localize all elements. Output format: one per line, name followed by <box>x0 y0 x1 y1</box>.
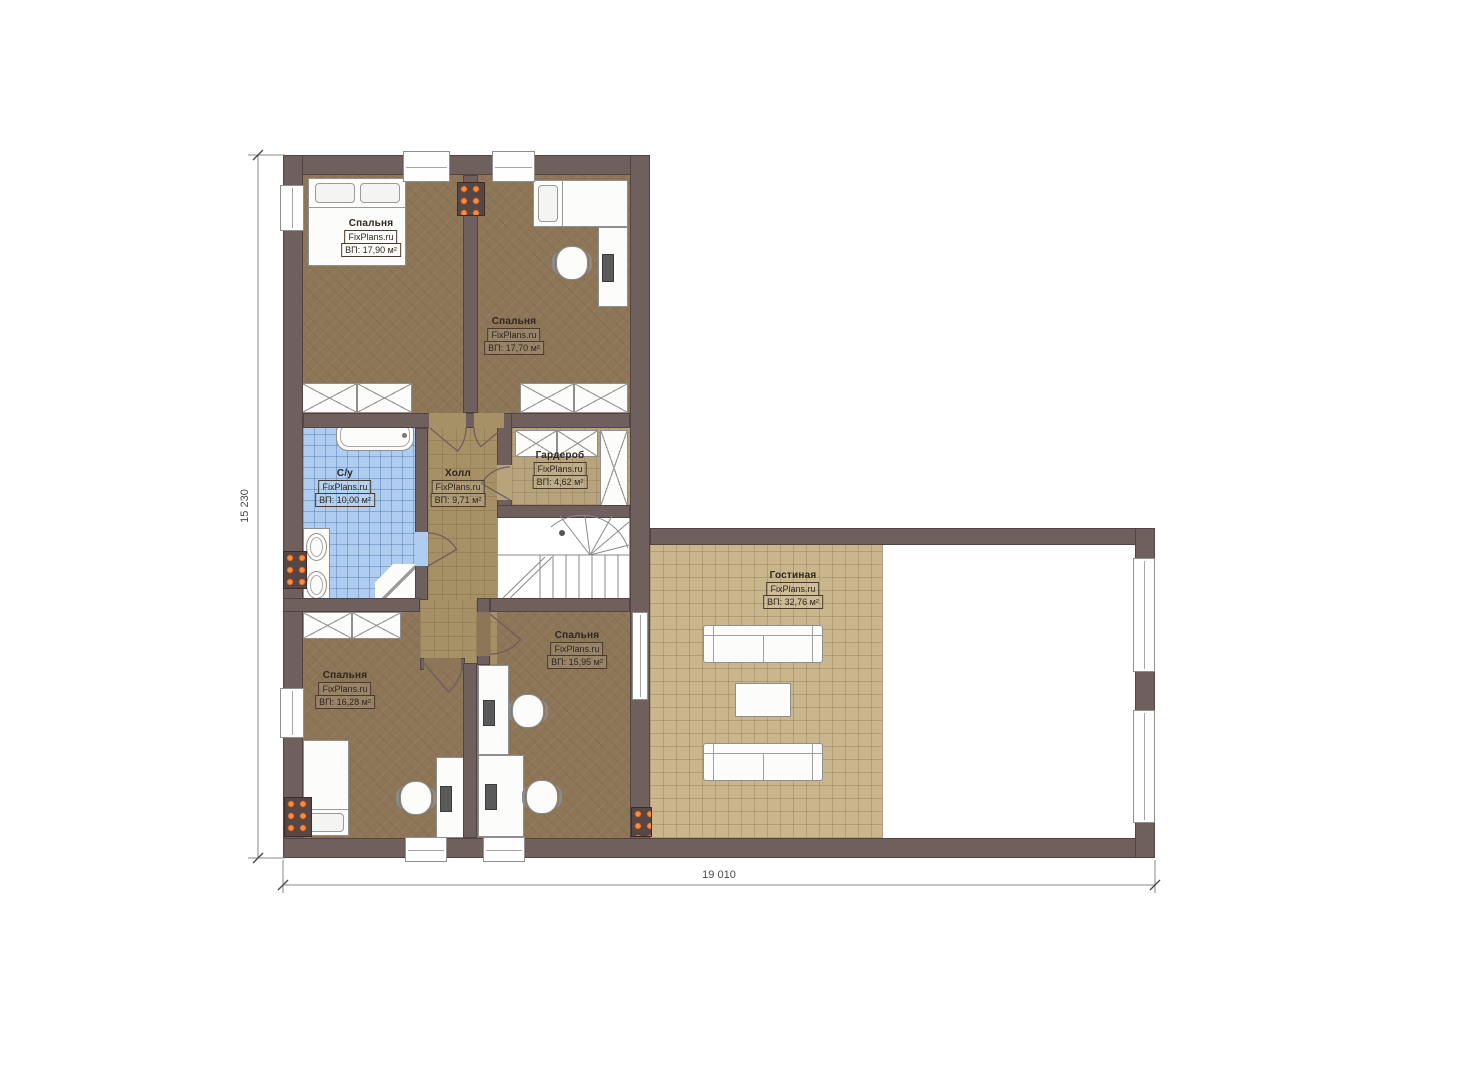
monitor <box>602 254 614 282</box>
watermark: FixPlans.ru <box>766 582 819 596</box>
cabinet-cell <box>352 612 401 639</box>
door-opening <box>474 413 504 428</box>
door-opening <box>477 612 490 656</box>
pillow <box>315 183 355 203</box>
room-name: Холл <box>431 468 486 479</box>
room-label-bathroom: С/у FixPlans.ru ВП: 10,00 м² <box>315 468 375 507</box>
wall-bathroom-hall <box>415 428 428 600</box>
wall-wing-top <box>650 528 1155 545</box>
blanket-line <box>562 181 563 226</box>
cabinet-cell <box>303 612 352 639</box>
wardrobe-cabinet <box>303 612 401 639</box>
cabinet-cell <box>574 383 628 413</box>
sink <box>306 533 327 561</box>
room-name: Гардероб <box>533 450 588 461</box>
desk <box>436 757 465 838</box>
room-label-living: Гостиная FixPlans.ru ВП: 32,76 м² <box>763 570 823 609</box>
room-area: ВП: 17,70 м² <box>484 341 544 355</box>
monitor <box>440 786 452 812</box>
sofa-armrest <box>704 744 714 780</box>
window <box>280 185 304 231</box>
watermark: FixPlans.ru <box>487 328 540 342</box>
dimension-label-width: 19 010 <box>702 869 736 881</box>
watermark: FixPlans.ru <box>344 230 397 244</box>
room-name: Спальня <box>484 316 544 327</box>
desk <box>478 665 509 755</box>
radiator <box>631 807 652 837</box>
monitor <box>483 700 495 726</box>
radiator <box>284 797 312 837</box>
coffee-table <box>735 683 791 717</box>
desk <box>598 227 628 307</box>
room-area: ВП: 16,28 м² <box>315 695 375 709</box>
office-chair <box>526 780 558 814</box>
desk <box>478 755 524 837</box>
watermark: FixPlans.ru <box>318 682 371 696</box>
room-area: ВП: 17,90 м² <box>341 243 401 257</box>
pillow <box>308 813 344 832</box>
room-name: С/у <box>315 468 375 479</box>
room-name: Спальня <box>547 630 607 641</box>
cabinet-cell <box>302 383 357 413</box>
room-label-bedroom-bottom-left: Спальня FixPlans.ru ВП: 16,28 м² <box>315 670 375 709</box>
cabinet-cell <box>357 383 412 413</box>
sofa-armrest <box>812 744 822 780</box>
watermark: FixPlans.ru <box>318 480 371 494</box>
room-label-bedroom-top-left: Спальня FixPlans.ru ВП: 17,90 м² <box>341 218 401 257</box>
wall-top <box>283 155 650 175</box>
room-area: ВП: 15,95 м² <box>547 655 607 669</box>
window <box>1133 710 1155 823</box>
radiator <box>283 551 307 589</box>
room-label-bedroom-bottom-middle: Спальня FixPlans.ru ВП: 15,95 м² <box>547 630 607 669</box>
room-area: ВП: 32,76 м² <box>763 595 823 609</box>
window <box>483 837 525 862</box>
room-area: ВП: 9,71 м² <box>431 493 486 507</box>
pillow <box>538 185 558 222</box>
sofa-armrest <box>704 626 714 662</box>
watermark: FixPlans.ru <box>550 642 603 656</box>
wall-bath-bedroom <box>283 598 420 612</box>
watermark: FixPlans.ru <box>431 480 484 494</box>
dimension-label-height: 15 230 <box>239 489 251 523</box>
blanket-line <box>309 207 405 208</box>
office-chair <box>556 246 588 280</box>
sofa-armrest <box>812 626 822 662</box>
room-name: Гостиная <box>763 570 823 581</box>
room-label-bedroom-top-right: Спальня FixPlans.ru ВП: 17,70 м² <box>484 316 544 355</box>
bath-tap <box>402 433 407 438</box>
single-bed <box>533 180 628 227</box>
radiator <box>457 182 485 216</box>
wall-block-right <box>630 155 650 858</box>
room-area: ВП: 10,00 м² <box>315 493 375 507</box>
sofa-seat-divider <box>763 753 764 780</box>
cabinet-cell <box>600 430 628 506</box>
partition-bottom-bedrooms <box>463 663 477 838</box>
door-opening <box>424 658 461 670</box>
room-name: Спальня <box>315 670 375 681</box>
monitor <box>485 784 497 810</box>
window <box>405 837 447 862</box>
wall-stairs-bedroom <box>490 598 630 612</box>
room-name: Спальня <box>341 218 401 229</box>
window <box>403 151 450 182</box>
wardrobe-cabinet <box>600 430 628 506</box>
wall-left <box>283 155 303 858</box>
watermark: FixPlans.ru <box>533 462 586 476</box>
sofa <box>703 743 823 781</box>
window <box>280 688 304 738</box>
pillow <box>360 183 400 203</box>
wall-mid-horizontal <box>303 413 630 428</box>
door-opening <box>497 465 512 500</box>
window <box>1133 558 1155 672</box>
door-opening <box>429 413 466 428</box>
interior-window <box>632 612 648 700</box>
office-chair <box>512 694 544 728</box>
sink <box>306 571 327 599</box>
office-chair <box>400 781 432 815</box>
sofa <box>703 625 823 663</box>
sofa-seat-divider <box>763 635 764 662</box>
wardrobe-cabinet <box>302 383 412 413</box>
cabinet-cell <box>520 383 574 413</box>
door-opening <box>415 532 428 566</box>
window <box>492 151 535 182</box>
wardrobe-cabinet <box>520 383 628 413</box>
stairs <box>497 515 630 600</box>
room-area: ВП: 4,62 м² <box>533 475 588 489</box>
floor-plan-canvas: Спальня FixPlans.ru ВП: 17,90 м² Спальня… <box>0 0 1474 1080</box>
wall-wardrobe-stairs <box>497 505 630 518</box>
room-label-hall: Холл FixPlans.ru ВП: 9,71 м² <box>431 468 486 507</box>
room-label-wardrobe: Гардероб FixPlans.ru ВП: 4,62 м² <box>533 450 588 489</box>
